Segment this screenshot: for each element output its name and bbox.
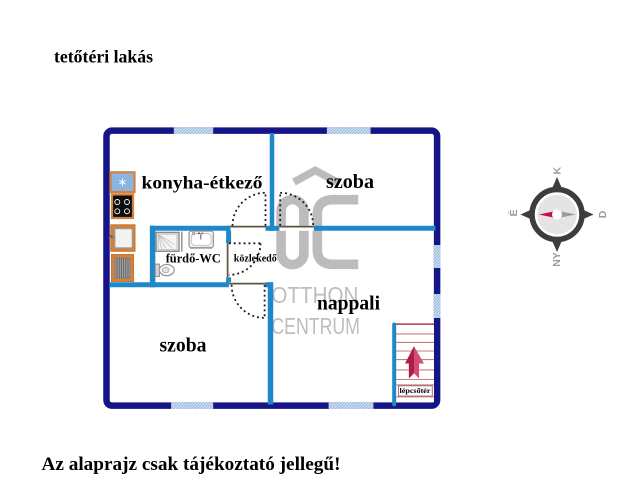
- svg-text:É: É: [507, 209, 520, 216]
- svg-text:közlekedő: közlekedő: [234, 252, 277, 264]
- svg-text:konyha-étkező: konyha-étkező: [142, 172, 263, 192]
- svg-text:lépcsőtér: lépcsőtér: [400, 386, 432, 395]
- svg-text:K: K: [551, 166, 563, 174]
- svg-text:fürdő-WC: fürdő-WC: [166, 252, 221, 266]
- svg-text:nappali: nappali: [317, 293, 381, 314]
- svg-text:NY: NY: [551, 252, 563, 267]
- svg-text:D: D: [597, 210, 609, 218]
- svg-text:CENTRUM: CENTRUM: [271, 313, 360, 339]
- svg-text:szoba: szoba: [160, 335, 207, 357]
- svg-text:tetőtéri lakás: tetőtéri lakás: [54, 47, 153, 67]
- svg-text:szoba: szoba: [326, 171, 374, 193]
- svg-text:Az alaprajz csak tájékoztató j: Az alaprajz csak tájékoztató jellegű!: [42, 454, 341, 475]
